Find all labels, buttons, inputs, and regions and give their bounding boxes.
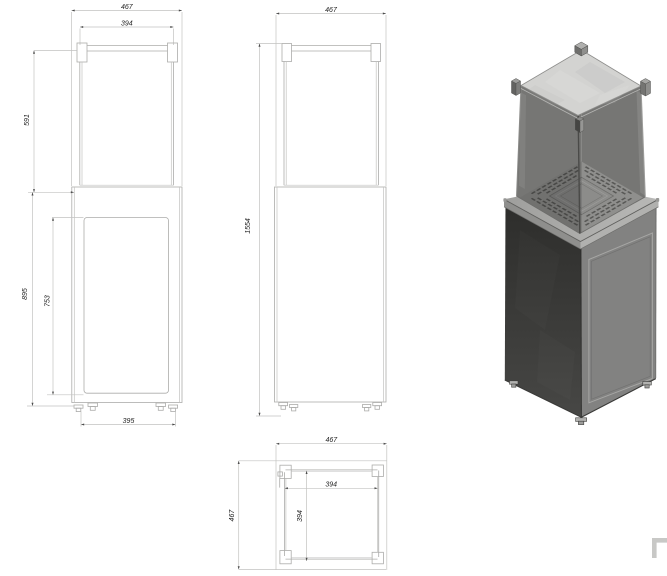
svg-text:467: 467 bbox=[325, 437, 338, 444]
svg-text:394: 394 bbox=[297, 510, 304, 522]
svg-text:394: 394 bbox=[325, 481, 337, 488]
svg-text:1554: 1554 bbox=[245, 218, 252, 234]
svg-text:467: 467 bbox=[229, 509, 236, 522]
svg-text:395: 395 bbox=[123, 418, 135, 425]
svg-text:895: 895 bbox=[22, 288, 29, 300]
svg-text:467: 467 bbox=[121, 4, 134, 11]
svg-text:591: 591 bbox=[24, 114, 31, 126]
svg-text:753: 753 bbox=[44, 295, 51, 307]
svg-text:467: 467 bbox=[325, 7, 338, 14]
svg-text:394: 394 bbox=[121, 21, 133, 28]
